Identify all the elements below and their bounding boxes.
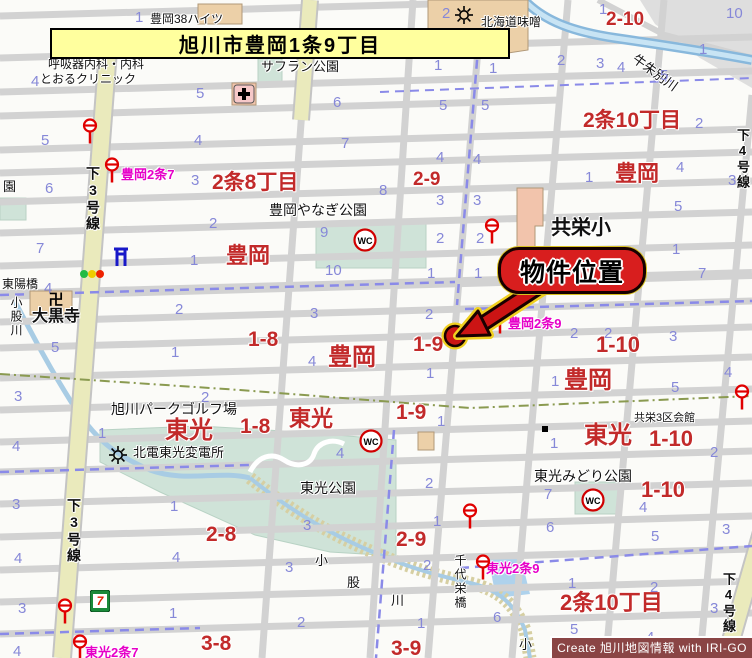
map-background <box>0 0 752 658</box>
property-location-callout: 物件位置 <box>498 247 646 294</box>
map-attribution: Create 旭川地図情報 with IRI-GO <box>550 636 752 658</box>
map-title-banner: 旭川市豊岡1条9丁目 <box>50 28 510 59</box>
map-canvas[interactable]: 豊岡38ハイツ北海道味噌呼吸器内科・内科とおるクリニックサフラン公園豊岡やなぎ公… <box>0 0 752 658</box>
